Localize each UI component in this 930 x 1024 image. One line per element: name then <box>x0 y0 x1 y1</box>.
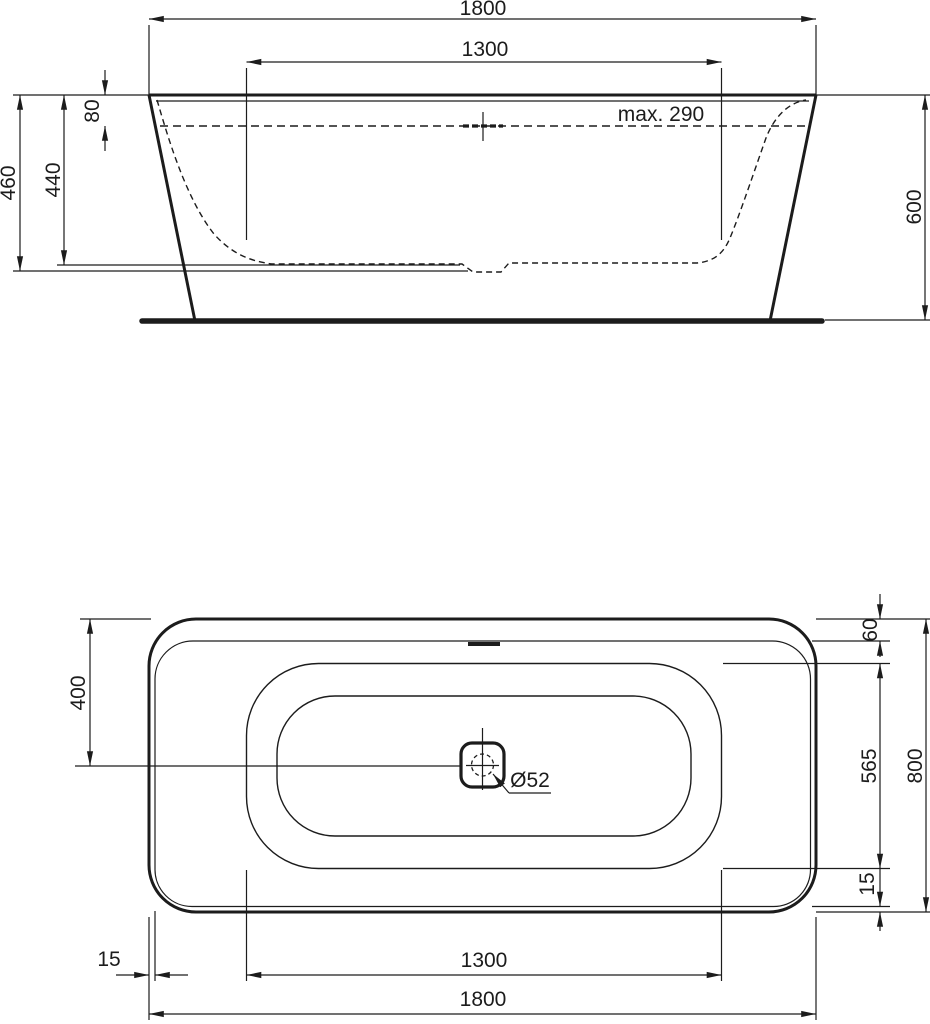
dim-label-max-fill: max. 290 <box>618 103 704 126</box>
dim-label-rim-to-waterline: 80 <box>81 99 104 122</box>
dim-overall-width: 800 <box>904 619 927 912</box>
dim-label-rim-width-top: 60 <box>859 618 882 641</box>
dim-interior-depth-to-sump: 460 <box>0 95 20 271</box>
technical-drawing-page: max. 290 1800 1300 80 460 <box>0 0 930 1024</box>
dim-rim-width-side: 15 <box>97 948 188 975</box>
dim-plan-interior-length: 1300 <box>247 949 722 975</box>
dim-rim-width-top: 60 <box>859 594 882 657</box>
dim-label-plan-overall-length: 1800 <box>460 988 507 1011</box>
dim-rim-width-bottom: 15 <box>856 869 880 931</box>
dim-label-interior-depth: 440 <box>42 162 65 197</box>
dim-edge-to-centerline: 400 <box>67 619 151 766</box>
drain-leader-line <box>493 774 509 793</box>
dim-label-edge-to-centerline: 400 <box>67 675 90 710</box>
dim-label-side-interior-length: 1300 <box>462 38 509 61</box>
dim-label-plan-interior-length: 1300 <box>461 949 508 972</box>
dim-interior-width: 565 <box>858 664 881 869</box>
tub-left-wall <box>149 95 195 321</box>
dim-side-interior-length: 1300 <box>247 38 722 240</box>
plan-view: Ø52 400 60 565 15 <box>67 594 930 1020</box>
dim-label-drain-diameter: Ø52 <box>510 769 550 792</box>
dim-label-interior-width: 565 <box>858 748 881 783</box>
side-view: max. 290 1800 1300 80 460 <box>0 0 930 321</box>
dim-rim-to-waterline: 80 <box>81 70 105 151</box>
dim-label-rim-width-side: 15 <box>97 948 120 971</box>
drain: Ø52 <box>461 728 551 793</box>
dim-interior-depth: 440 <box>42 95 65 265</box>
dim-overall-height: 600 <box>825 95 930 320</box>
dim-label-overall-width: 800 <box>904 748 927 783</box>
dim-label-overall-height: 600 <box>903 189 926 224</box>
tub-right-wall <box>770 95 816 321</box>
dim-label-interior-depth-to-sump: 460 <box>0 165 20 200</box>
dim-label-rim-width-bottom: 15 <box>856 872 879 895</box>
dim-plan-overall-length: 1800 <box>149 988 816 1014</box>
drawing-canvas: max. 290 1800 1300 80 460 <box>0 0 930 1024</box>
dim-label-side-overall-length: 1800 <box>460 0 507 20</box>
